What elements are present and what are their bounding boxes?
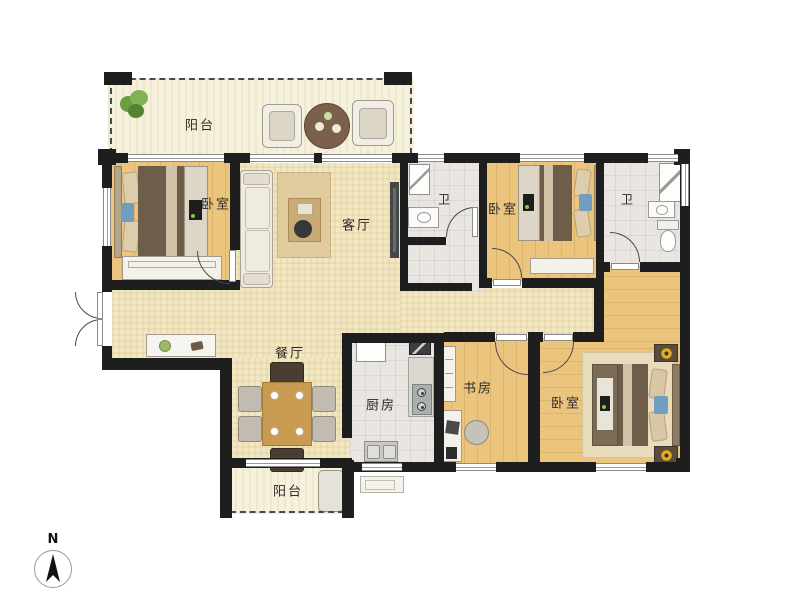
bathroom-1-vanity [408,207,439,228]
bedroom-3-bed [592,362,680,448]
bathroom-2-window [648,154,678,162]
bedroom-1-side-window [103,188,111,246]
bedroom-1-door-leaf [229,250,236,282]
balcony-armchair [352,100,394,146]
kitchen-counter [408,357,434,417]
wall [224,153,250,163]
bedroom-1-window [128,154,224,162]
bedroom-3-floor-upper [600,266,684,342]
bathroom-2-side-window [681,164,689,206]
wall-pillar [384,72,412,85]
dining-chair [238,416,262,442]
wall [400,163,408,291]
wall [479,278,492,288]
laptop [445,420,460,435]
desk-chair [464,420,489,445]
bathroom-2-sink [648,201,675,218]
shower [409,164,430,195]
balcony-round-table [304,103,350,149]
dining-chair [312,416,336,442]
bedroom-3-window [596,463,646,471]
balcony-top-dashed-right [410,78,412,154]
kitchen-window [362,463,402,471]
dining-balcony-window [246,459,320,467]
bedroom-2-window [520,154,584,162]
wall [408,237,446,245]
balcony-bottom-label: 阳台 [273,481,303,500]
bedroom-2-door-leaf [493,279,521,286]
wall [522,278,604,288]
study-window [456,463,496,471]
nightstand [654,344,678,362]
wall [444,153,520,163]
living-room-label: 客厅 [342,215,372,234]
wall [342,333,352,438]
balcony-top-label: 阳台 [185,115,215,134]
lamp [661,450,672,461]
bookshelf [442,346,456,402]
dining-chair [312,386,336,412]
bedroom-2-label: 卧室 [488,199,518,218]
entry-console [146,334,216,357]
wall [444,332,495,342]
fridge [356,340,386,362]
wall [496,462,596,472]
kitchen-label: 厨房 [366,395,396,414]
bathroom-1-label: 卫 [438,191,450,208]
wall [314,153,322,163]
north-arrow-icon [34,550,72,588]
compass: N [30,532,76,594]
balcony-top-dashed-edge [110,78,412,80]
tv [600,396,610,411]
sofa [240,170,273,288]
balcony-bottom-dashed-edge [230,511,344,513]
wall [584,153,648,163]
kitchen-sink [364,441,398,462]
washing-machine [318,470,344,512]
bedroom-1-bed [114,166,208,258]
entry-door-leaf [97,292,103,319]
dining-room-label: 餐厅 [275,343,305,362]
tv-cabinet [390,182,399,258]
potted-plant [118,90,152,124]
wall [528,342,540,462]
bedroom-3-label: 卧室 [551,393,581,412]
wall-pillar [104,72,132,85]
bathroom-1-door-leaf [472,207,478,237]
wall [102,153,112,188]
compass-north-label: N [30,532,76,547]
bedroom-1-label: 卧室 [201,194,231,213]
bedroom-2-dresser [530,258,594,274]
wall [573,332,604,342]
bedroom-2-bed [518,165,600,241]
wall [594,282,604,332]
study-label: 书房 [463,378,493,397]
living-balcony-door-window [322,154,392,162]
wall-corner [676,458,690,472]
floor-plan: 阳台 卧室 客厅 卫 卧室 卫 餐厅 厨房 书房 卧室 阳台 N [0,0,800,600]
wall [342,333,444,343]
wall [596,153,604,282]
desk [442,410,462,462]
bathroom-2-door-leaf [611,263,639,270]
study-door-leaf [496,334,527,341]
wall [230,163,240,250]
entry-door-leaf [97,319,103,346]
wall [479,163,487,278]
lamp [661,348,672,359]
wall [528,332,543,342]
bathroom-2-label: 卫 [621,191,633,208]
bathroom-1-window [418,154,444,162]
toilet [657,220,679,254]
corridor-floor [400,288,604,334]
living-balcony-door-window [250,154,314,162]
dining-table [262,382,312,446]
wall [604,262,610,272]
wall [434,333,444,472]
lounge-chair [294,220,312,238]
dining-chair [238,386,262,412]
pc-tower [446,447,457,459]
wall [108,358,232,370]
tv [523,194,534,211]
wall [400,283,472,291]
wall [392,153,418,163]
shower [659,163,681,202]
balcony-armchair [262,104,302,148]
wall [434,462,456,472]
ac-platform [360,476,404,493]
wall [220,358,232,518]
balcony-top-dashed-left [110,78,112,154]
bedroom-3-door-leaf [544,334,573,341]
